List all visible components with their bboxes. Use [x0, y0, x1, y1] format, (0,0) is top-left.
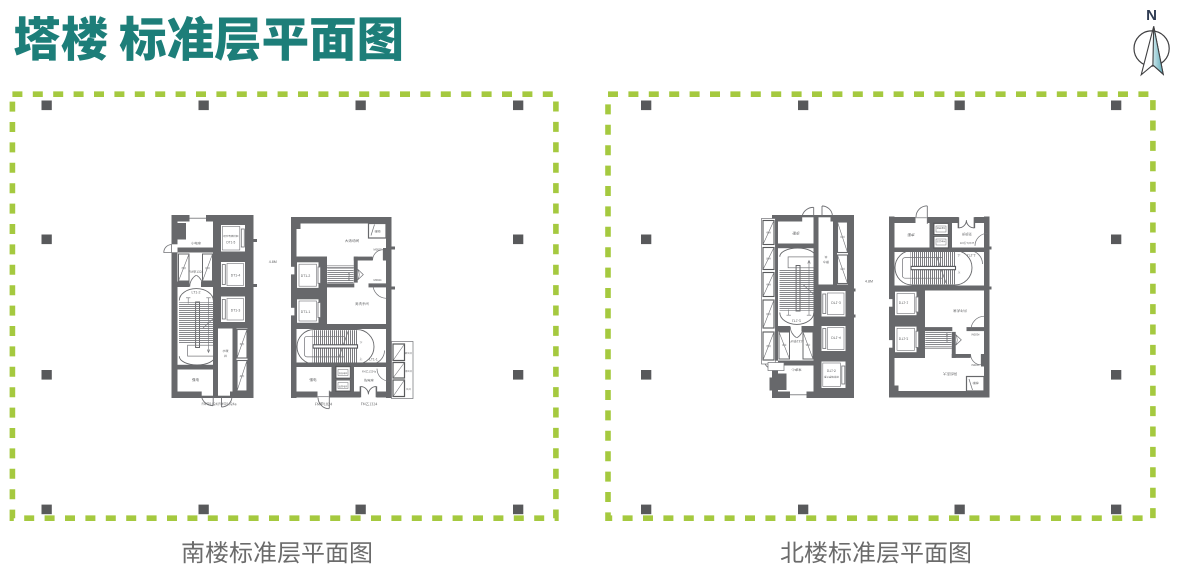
svg-text:N: N — [1146, 7, 1157, 24]
svg-text:4.8M: 4.8M — [865, 280, 873, 284]
svg-text:4.8M: 4.8M — [269, 260, 277, 264]
